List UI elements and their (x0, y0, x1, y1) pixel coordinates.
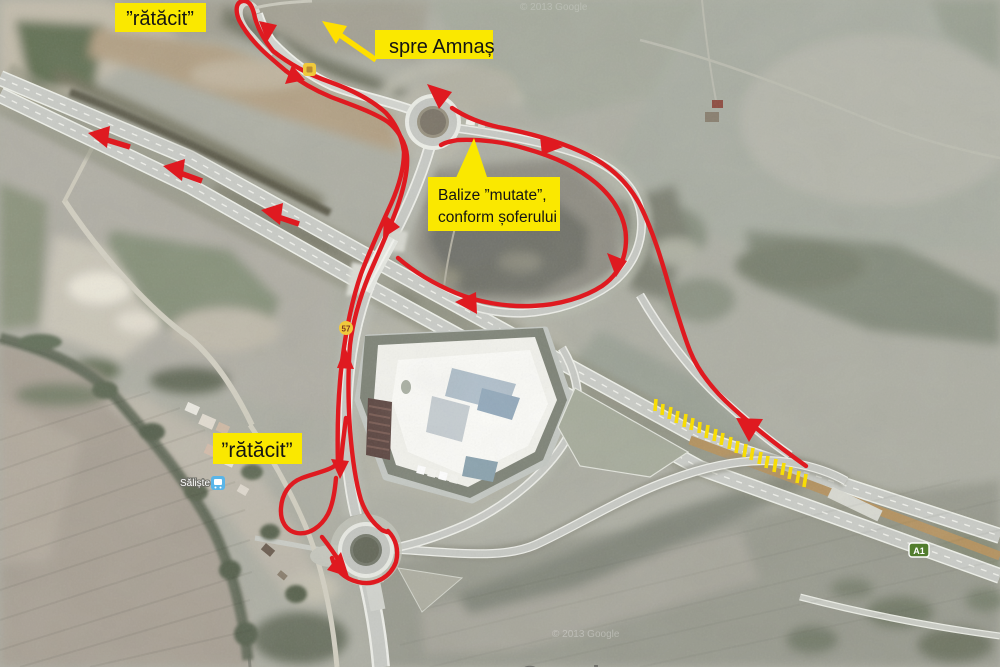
svg-text:Balize ”mutate”,: Balize ”mutate”, (438, 187, 547, 204)
svg-text:57: 57 (342, 325, 351, 334)
svg-text:spre Amnaș: spre Amnaș (389, 36, 495, 58)
svg-text:conform șoferului: conform șoferului (438, 209, 557, 226)
svg-text:”rătăcit”: ”rătăcit” (126, 8, 194, 30)
svg-text:”rătăcit”: ”rătăcit” (221, 439, 292, 462)
svg-text:Săliște: Săliște (180, 478, 210, 489)
svg-text:A1: A1 (913, 546, 925, 556)
